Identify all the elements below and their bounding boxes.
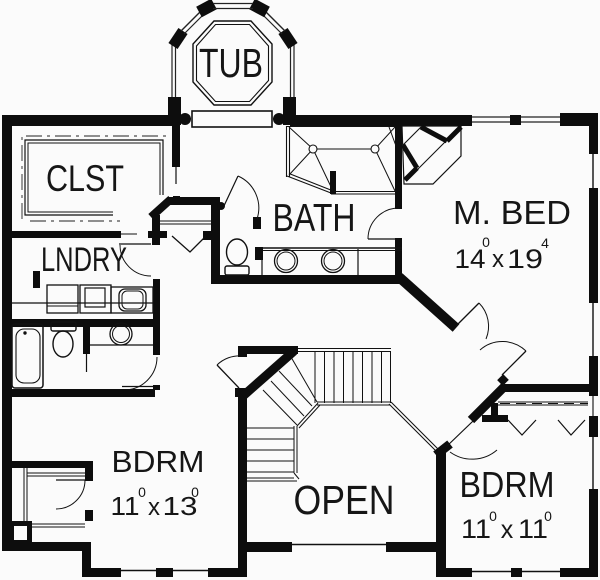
- svg-text:4: 4: [541, 235, 549, 251]
- svg-text:0: 0: [482, 234, 490, 250]
- svg-text:14: 14: [455, 244, 486, 274]
- svg-text:0: 0: [191, 484, 199, 500]
- svg-text:x: x: [501, 516, 514, 544]
- svg-text:x: x: [148, 494, 160, 521]
- svg-text:BATH: BATH: [273, 197, 356, 240]
- svg-text:BDRM: BDRM: [112, 444, 205, 479]
- svg-text:11: 11: [461, 514, 491, 544]
- svg-text:x: x: [492, 246, 504, 273]
- svg-text:TUB: TUB: [199, 40, 263, 86]
- svg-text:CLST: CLST: [46, 158, 124, 199]
- svg-text:11: 11: [111, 491, 140, 521]
- svg-text:OPEN: OPEN: [294, 477, 395, 523]
- svg-text:0: 0: [489, 508, 497, 524]
- svg-text:0: 0: [138, 484, 146, 500]
- svg-text:19: 19: [507, 244, 543, 274]
- svg-text:0: 0: [544, 508, 552, 524]
- svg-text:LNDRY: LNDRY: [41, 241, 127, 279]
- svg-text:BDRM: BDRM: [460, 464, 555, 505]
- svg-text:M. BED: M. BED: [453, 194, 571, 231]
